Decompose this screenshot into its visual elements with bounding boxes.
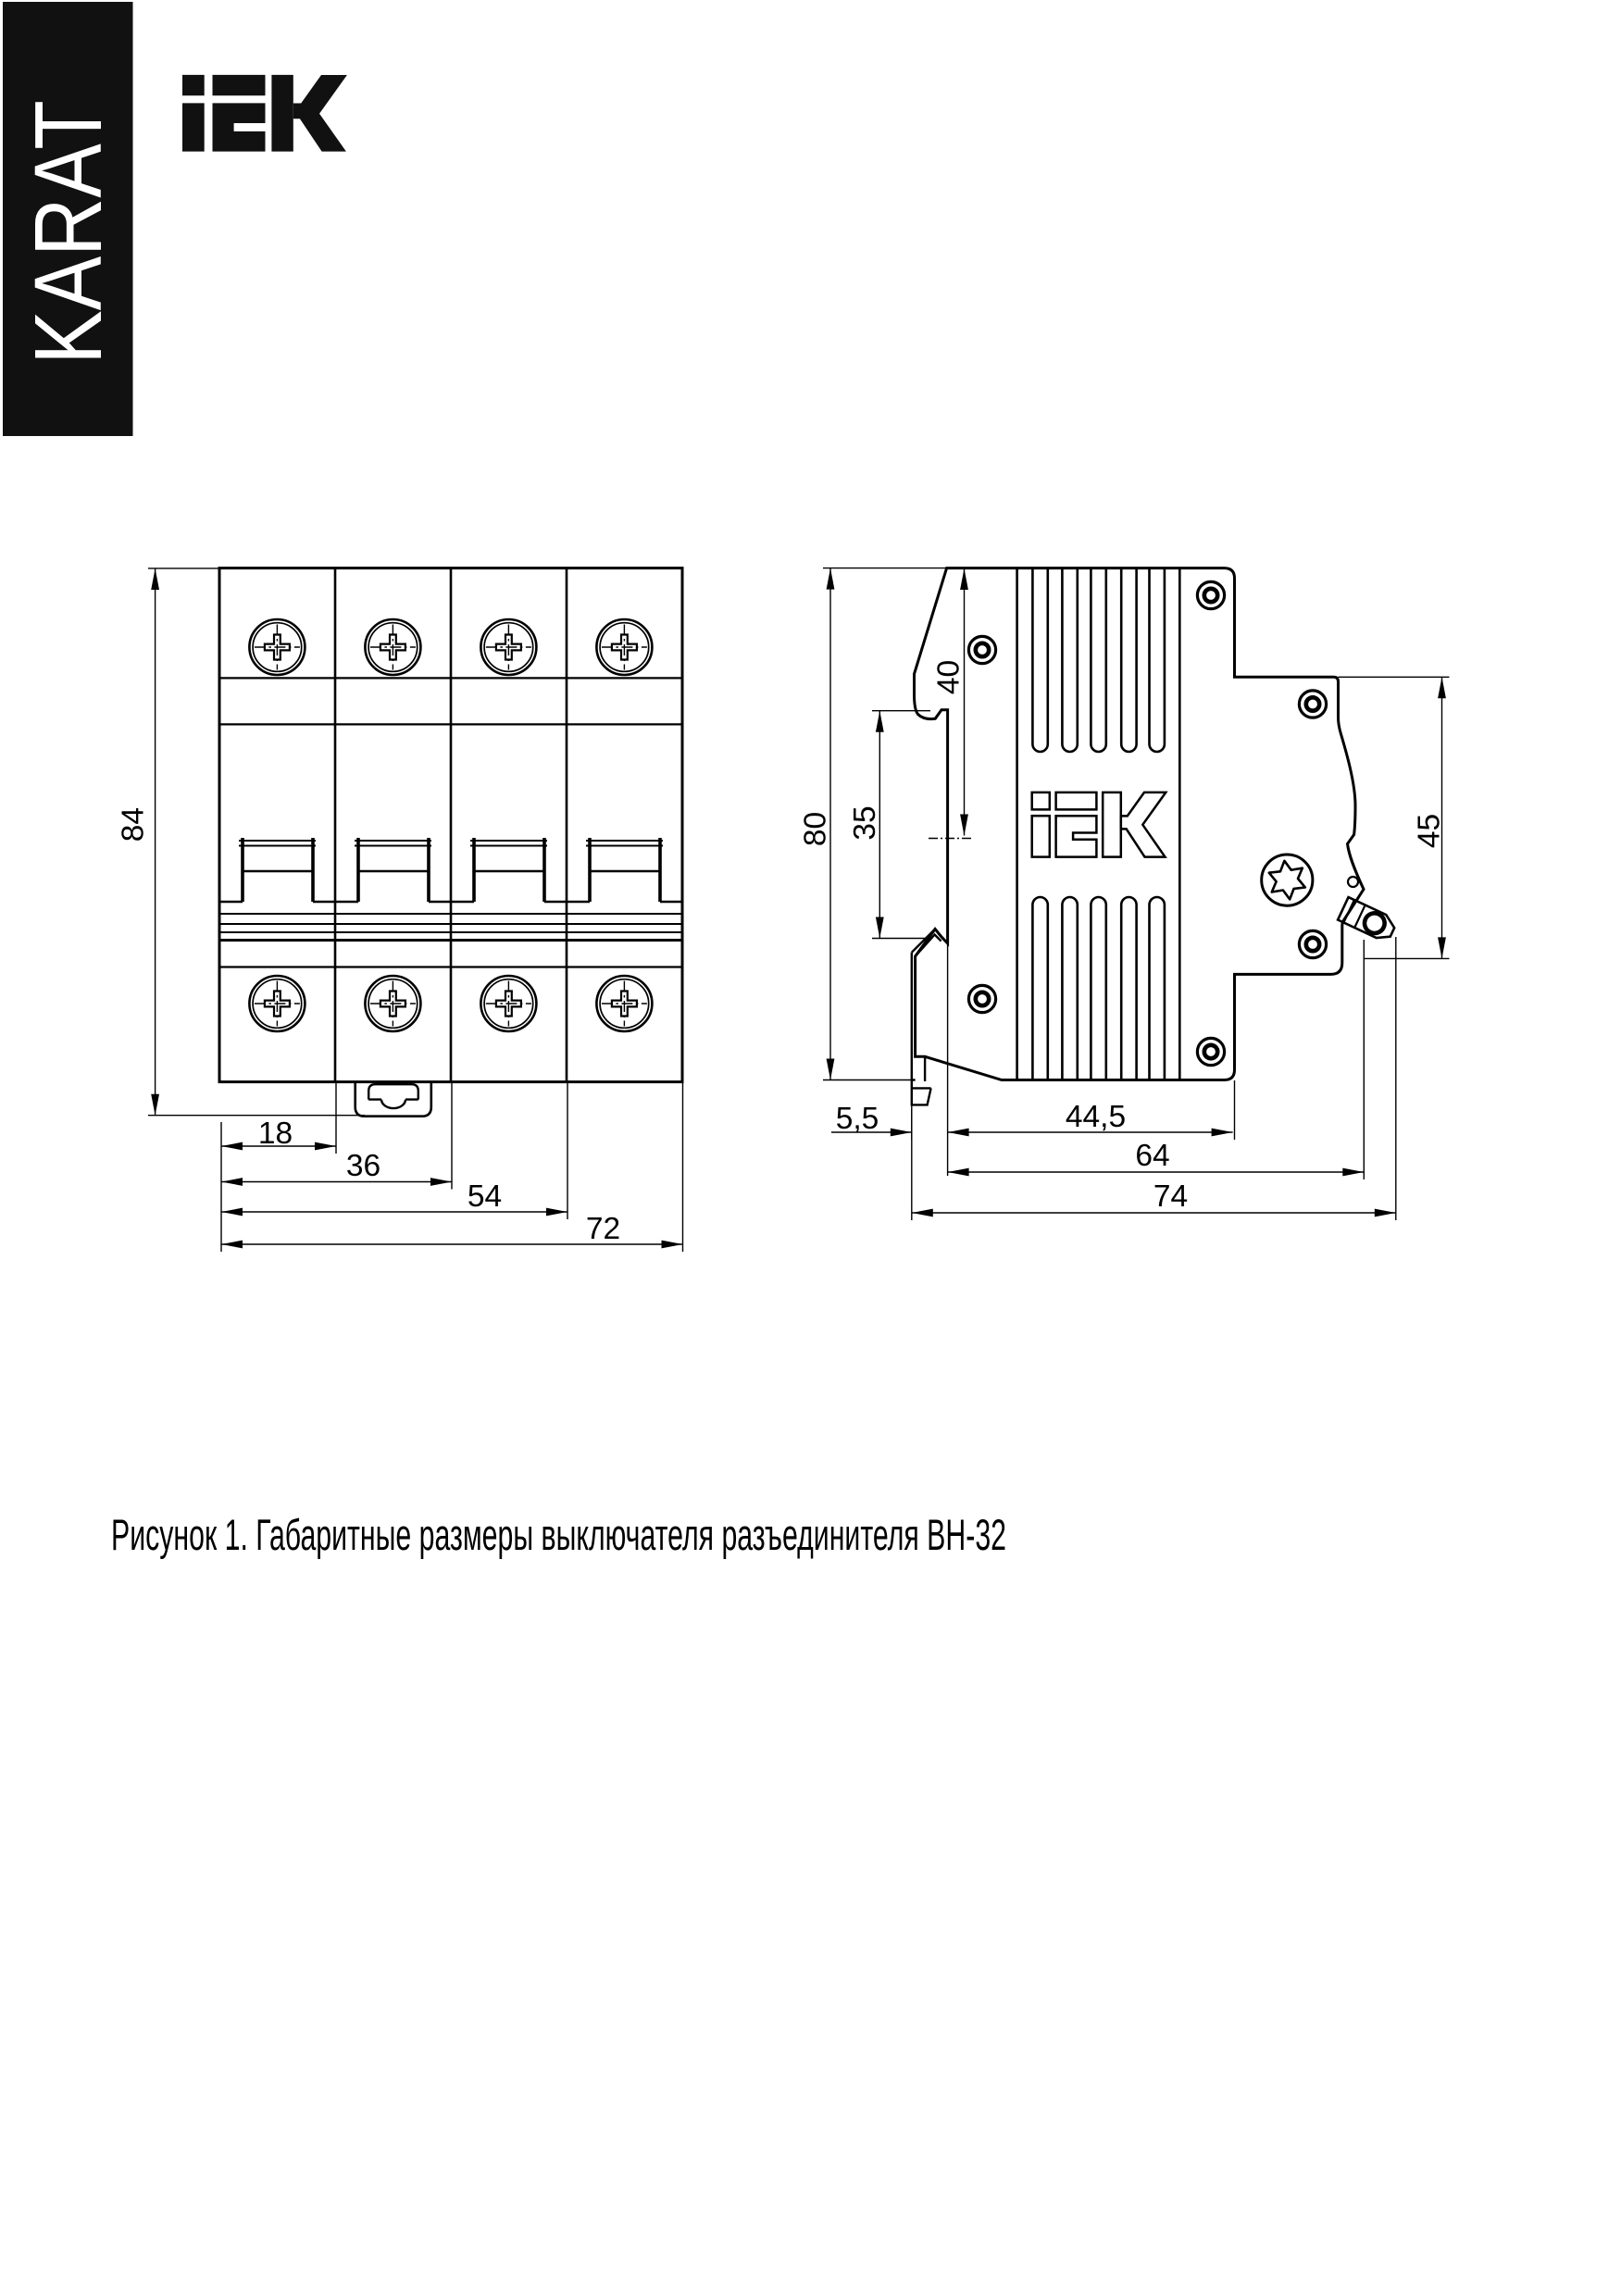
svg-text:40: 40 xyxy=(932,660,966,694)
svg-text:84: 84 xyxy=(117,807,151,842)
svg-text:44,5: 44,5 xyxy=(1066,1100,1126,1134)
svg-text:74: 74 xyxy=(1153,1179,1188,1214)
svg-text:Рисунок 1. Габаритные размеры: Рисунок 1. Габаритные размеры выключател… xyxy=(111,1510,1006,1559)
svg-text:45: 45 xyxy=(1413,814,1447,848)
svg-text:54: 54 xyxy=(468,1179,502,1214)
svg-text:KARAT: KARAT xyxy=(15,100,121,364)
svg-text:18: 18 xyxy=(258,1117,293,1151)
svg-text:5,5: 5,5 xyxy=(836,1102,879,1136)
svg-text:64: 64 xyxy=(1135,1139,1169,1173)
svg-text:36: 36 xyxy=(346,1149,380,1183)
svg-text:35: 35 xyxy=(848,805,882,840)
svg-text:80: 80 xyxy=(799,812,833,846)
svg-text:72: 72 xyxy=(586,1212,620,1246)
